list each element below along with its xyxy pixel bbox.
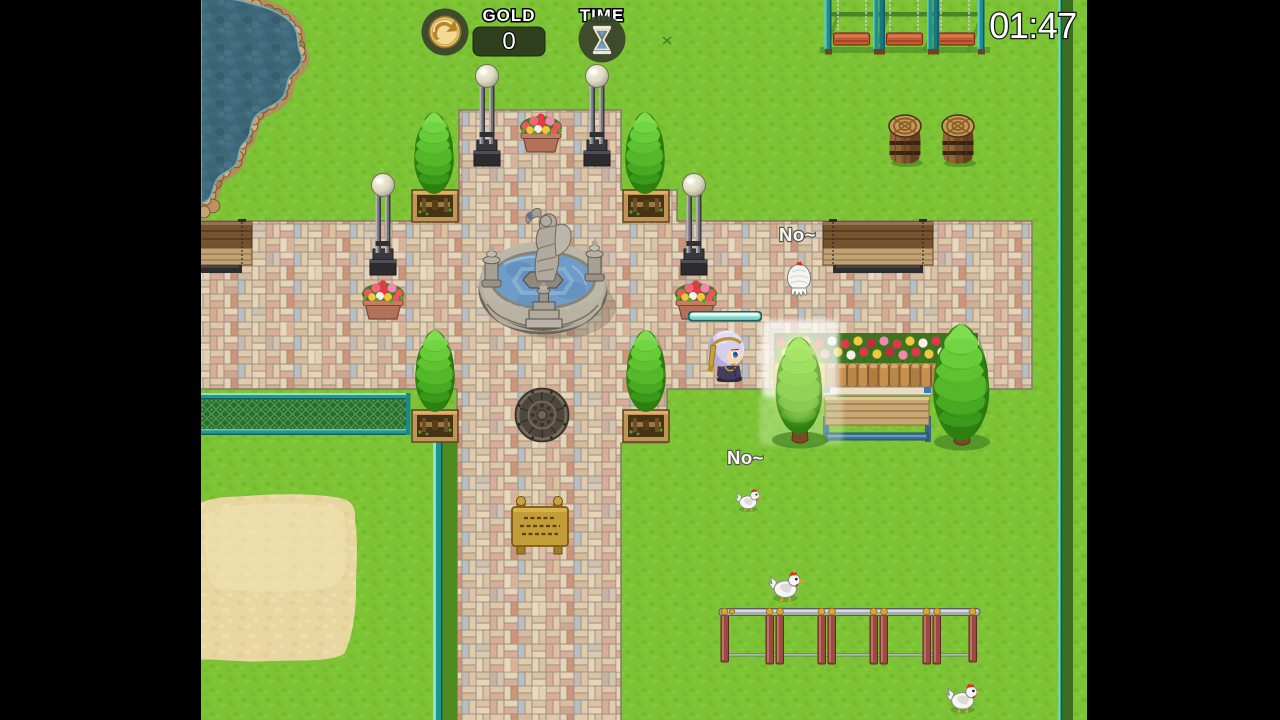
svg-text:No~: No~ [727, 447, 764, 468]
svg-text:GOLD: GOLD [482, 6, 535, 25]
svg-text:0: 0 [502, 28, 515, 55]
svg-text:No~: No~ [779, 224, 816, 245]
svg-text:01:47: 01:47 [989, 5, 1077, 46]
